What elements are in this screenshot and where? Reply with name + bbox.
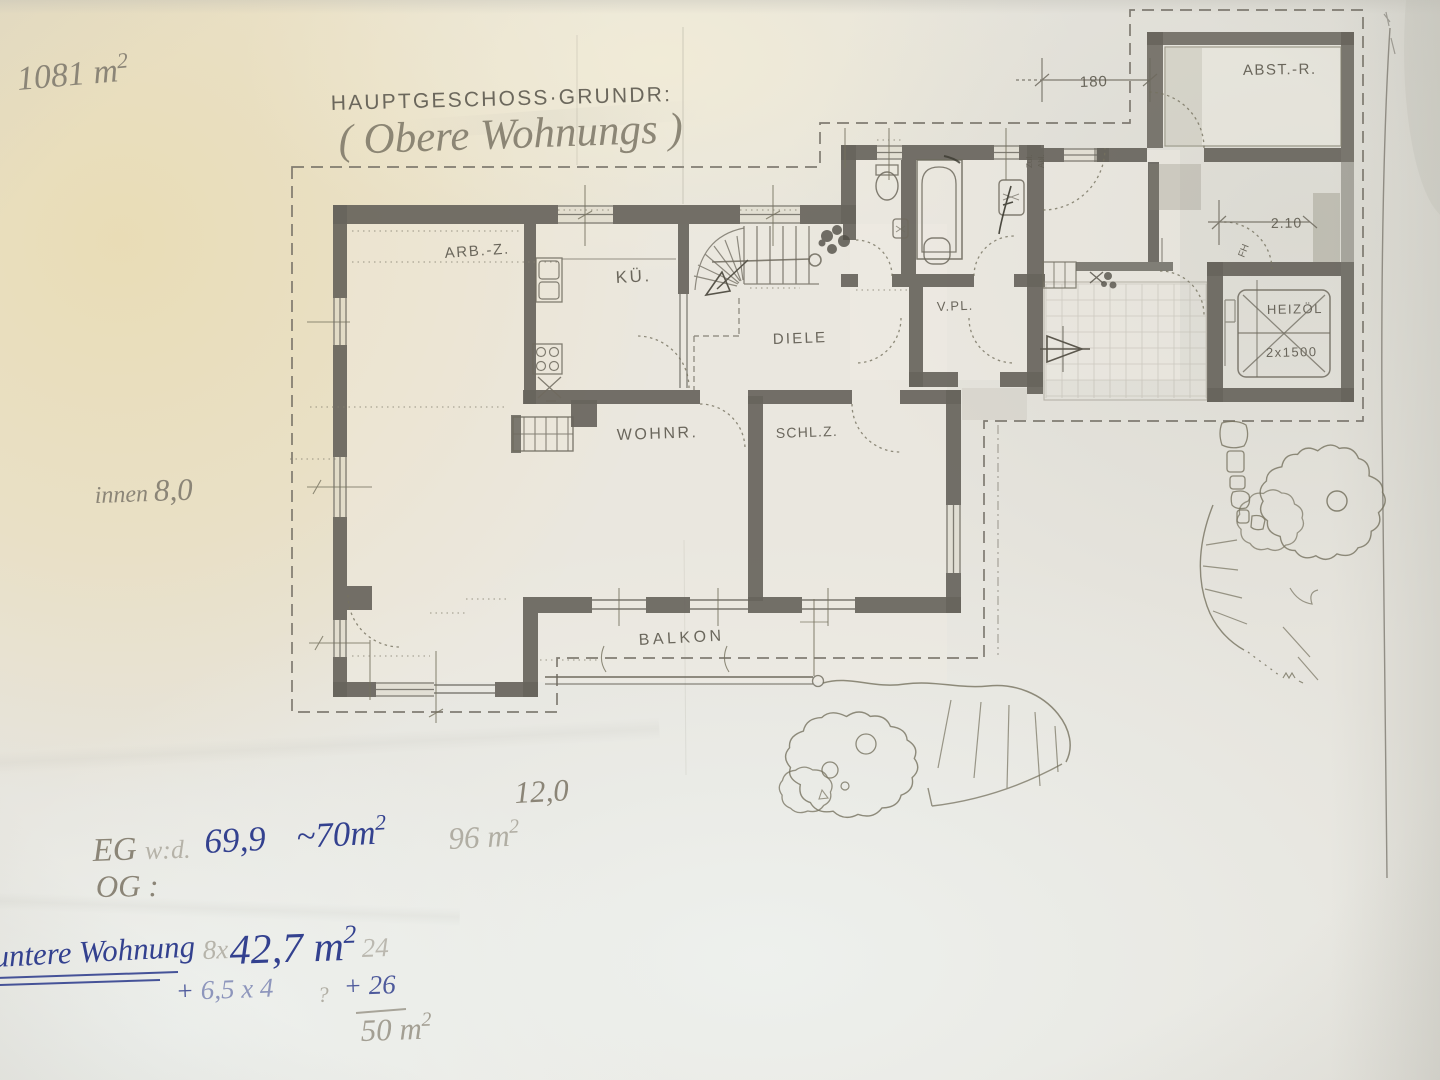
- svg-text:96 m2: 96 m2: [447, 815, 520, 856]
- svg-text:KÜ.: KÜ.: [615, 266, 652, 287]
- svg-text:24: 24: [361, 932, 389, 963]
- svg-text:8x: 8x: [202, 934, 229, 965]
- svg-text:Zul.: Zul.: [1025, 155, 1034, 168]
- svg-text:DIELE: DIELE: [773, 329, 828, 348]
- svg-text:2.10: 2.10: [1271, 214, 1303, 231]
- svg-text:EG w:d.: EG w:d.: [91, 830, 191, 869]
- svg-text:12,0: 12,0: [514, 772, 571, 810]
- svg-text:~70m2: ~70m2: [295, 809, 387, 856]
- svg-text:+ 26: + 26: [343, 969, 396, 1001]
- svg-text:Abl.: Abl.: [1037, 154, 1046, 168]
- svg-text:180: 180: [1080, 73, 1109, 91]
- svg-text:69,9: 69,9: [203, 819, 266, 861]
- svg-text:V.PL.: V.PL.: [937, 298, 974, 314]
- svg-text:50 m2: 50 m2: [360, 1009, 432, 1048]
- svg-text:?: ?: [317, 982, 329, 1007]
- svg-text:42,7 m2: 42,7 m2: [229, 920, 358, 974]
- svg-text:ABST.-R.: ABST.-R.: [1243, 61, 1317, 79]
- svg-text:HEIZÖL: HEIZÖL: [1267, 301, 1323, 317]
- svg-text:WOHNR.: WOHNR.: [617, 424, 699, 444]
- svg-text:SCHL.Z.: SCHL.Z.: [776, 423, 839, 441]
- svg-text:+ 6,5 x 4: + 6,5 x 4: [175, 973, 274, 1006]
- svg-text:OG :: OG :: [96, 868, 159, 904]
